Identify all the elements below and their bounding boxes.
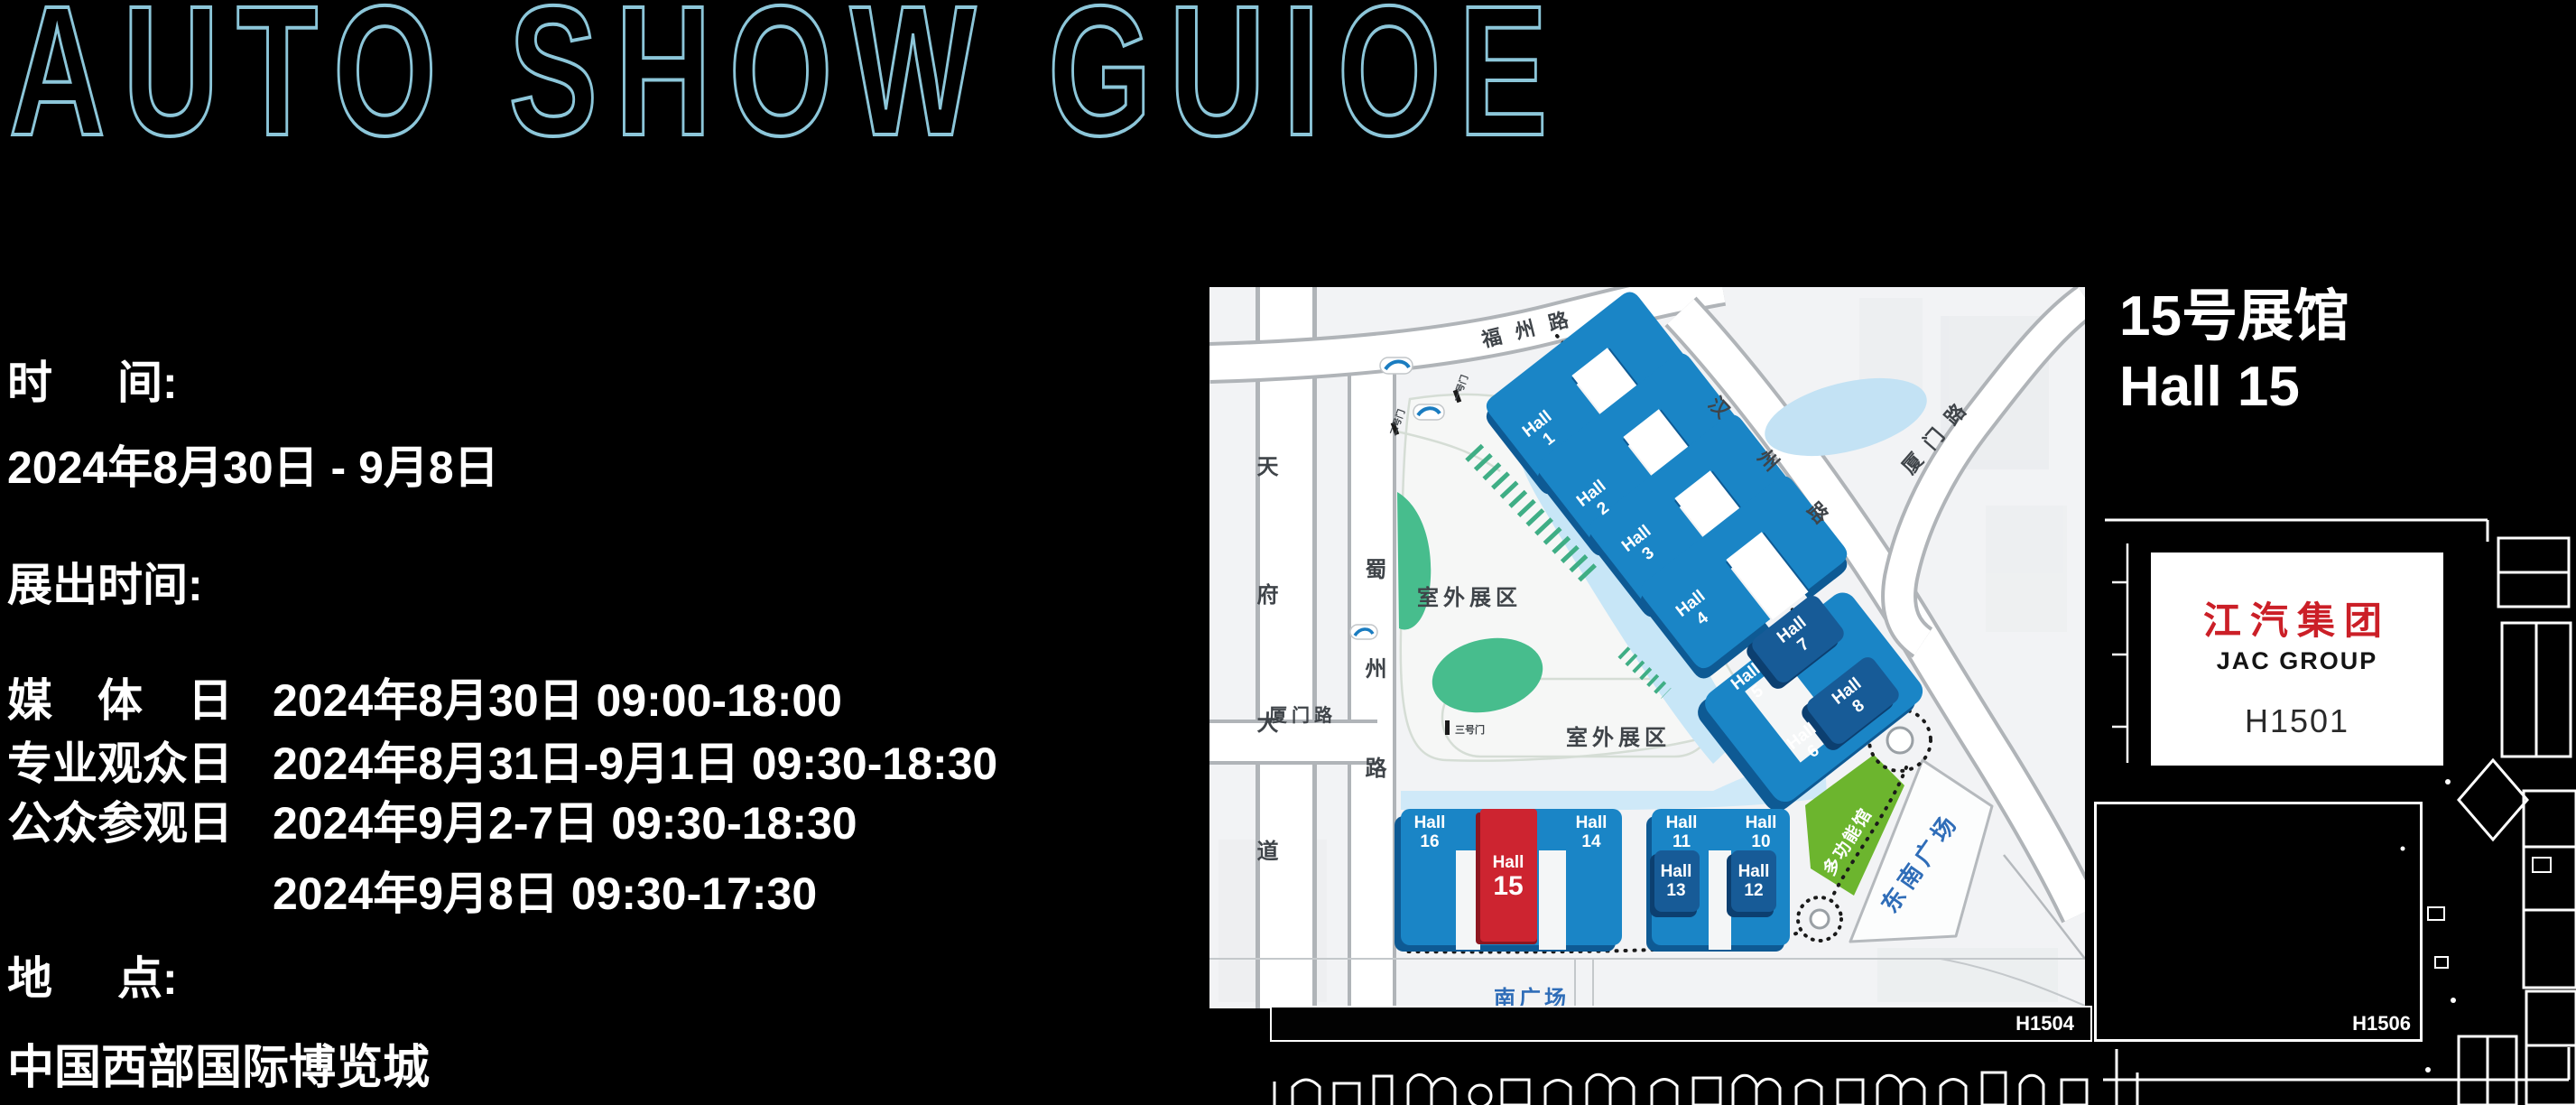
hall-10-label: Hall10 xyxy=(1733,814,1789,851)
schedule-row: 媒 体 日2024年8月30日 09:00-18:00 xyxy=(7,664,842,729)
event-dates: 2024年8月30日 - 9月8日 xyxy=(7,444,499,492)
booth-card: 江汽集团 JAC GROUP H1501 xyxy=(2151,552,2443,766)
hall-callout: 15号展馆 Hall 15 xyxy=(2119,289,2349,430)
schedule-row: 专业观众日2024年8月31日-9月1日 09:30-18:30 xyxy=(7,728,997,793)
roundabout xyxy=(1811,910,1829,928)
hall-16-label: Hall16 xyxy=(1402,814,1458,851)
jac-logo-cn: 江汽集团 xyxy=(2151,590,2443,645)
schedule-row: 公众参观日2024年9月2-7日 09:30-18:30 xyxy=(7,787,857,852)
auto-show-guide-page: AUTO SHOW GUIOE 时间: 2024年8月30日 - 9月8日 展出… xyxy=(0,0,2576,1105)
hall-12-label: Hall12 xyxy=(1726,863,1782,900)
hours-label: 展出时间: xyxy=(7,562,203,609)
page-title: AUTO SHOW GUIOE xyxy=(9,0,1565,163)
hall-callout-en: Hall 15 xyxy=(2119,359,2349,415)
venue-label: 地点: xyxy=(7,955,178,1003)
booth-bar-number: H1504 xyxy=(2015,1012,2074,1035)
floorplan-booth-bar: H1504 xyxy=(1270,1006,2092,1042)
hall-11-label: Hall11 xyxy=(1654,814,1710,851)
floorplan-booth-outline: H1506 xyxy=(2094,802,2423,1042)
hall-13-label: Hall13 xyxy=(1648,863,1704,900)
time-label: 时间: xyxy=(7,359,178,407)
roundabout xyxy=(1887,728,1913,753)
hall-14-label: Hall14 xyxy=(1563,814,1619,851)
schedule-row: 2024年9月8日 09:30-17:30 xyxy=(7,858,817,923)
road-label-tianfu: 天府大道 xyxy=(1249,455,1281,968)
site-map: 室外展区 室外展区 多功能馆 东南广场 南广场 福州路 汉州路 厦门路 厦门路 … xyxy=(1209,287,2085,1008)
hall-15-label: Hall15 xyxy=(1480,854,1536,900)
neighbour-booth-number: H1506 xyxy=(2352,1012,2411,1035)
jac-logo-en: JAC GROUP xyxy=(2151,647,2443,675)
venue-name: 中国西部国际博览城 xyxy=(7,1044,430,1093)
hall-callout-cn: 15号展馆 xyxy=(2119,289,2349,345)
outdoor-area-label: 室外展区 xyxy=(1566,720,1671,751)
road-label-shuzhou: 蜀州路 xyxy=(1357,558,1389,856)
booth-number: H1501 xyxy=(2151,702,2443,740)
gate-label: 三号门 xyxy=(1455,722,1485,737)
outdoor-area-label: 室外展区 xyxy=(1417,580,1522,611)
